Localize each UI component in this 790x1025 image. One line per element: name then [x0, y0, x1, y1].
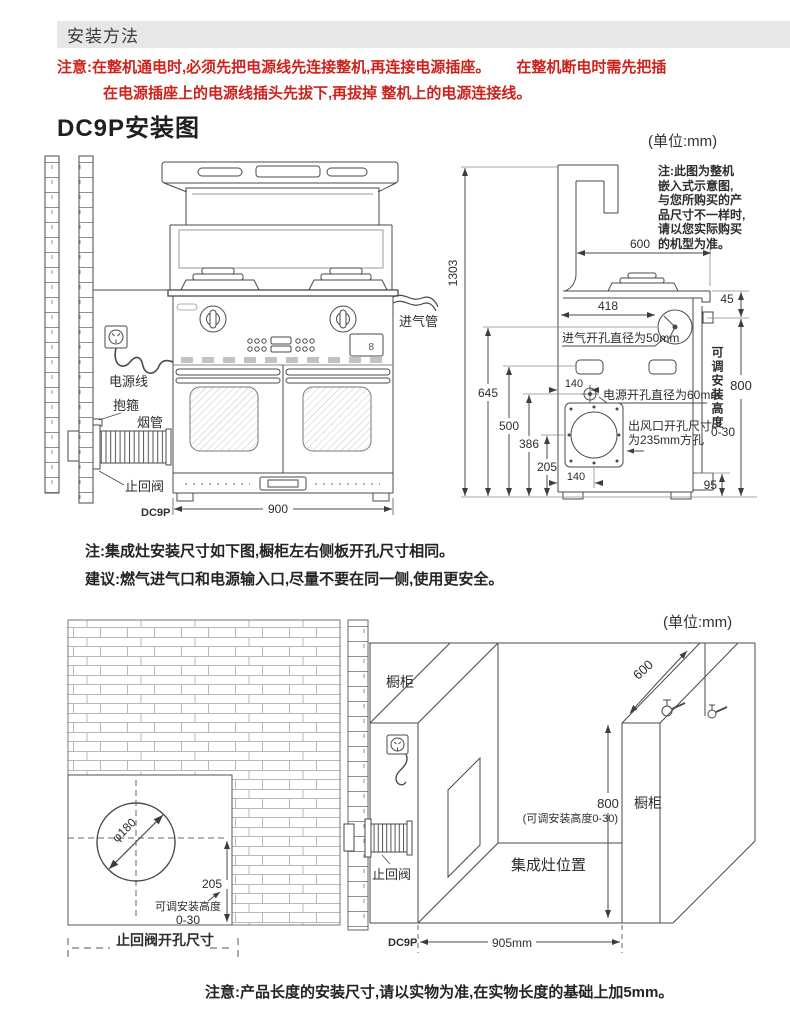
smoke-pipe-label: 烟管 [137, 415, 163, 430]
check-valve-hole-drawing: φ180 205 可调安装高度 0-30 止回阀开孔尺寸 [60, 618, 352, 963]
power-hole-symbol [581, 385, 599, 403]
outlet-hole-square [565, 403, 623, 467]
adjustable-height-label: 可调安装高度 [155, 899, 221, 913]
dim-800-cabinet: 800 [597, 796, 619, 811]
cabinet-label-right: 橱柜 [634, 795, 662, 811]
warning-line-1: 注意:在整机通电时,必须先把电源线先连接整机,再连接电源插座。在整机断电时需先把… [57, 55, 783, 81]
power-hole-label: 电源开孔直径为60mm [603, 388, 720, 402]
burner-right [309, 268, 387, 290]
countertop [168, 290, 398, 296]
intake-pipe-label: 进气管 [399, 314, 438, 329]
clamp-label: 抱箍 [113, 398, 139, 413]
check-valve-label: 止回阀 [125, 479, 164, 494]
side-bracket [703, 312, 713, 323]
dim-95: 95 [704, 478, 718, 492]
front-view-svg: 电源线 抱箍 烟管 止回阀 进气管 DC9P 900 8 [35, 148, 447, 530]
door-window-left [190, 387, 258, 451]
adjustable-height-label: 可调安装高度 [709, 346, 726, 430]
power-socket-icon [105, 326, 127, 348]
mid-suggestion: 建议:燃气进气口和电源输入口,尽量不要在同一侧,使用更安全。 [85, 568, 503, 589]
power-cord [115, 348, 173, 373]
dim-800: 800 [730, 378, 752, 393]
foot-left [177, 493, 193, 501]
outer-vent-cap [344, 824, 354, 851]
control-knob-left [200, 306, 226, 332]
smoke-pipe-ribs [371, 824, 407, 852]
dim-900: 900 [268, 502, 288, 516]
dim-45: 45 [720, 292, 734, 306]
check-valve-label: 止回阀 [372, 867, 411, 882]
intake-hole-label: 进气开孔直径为50mm [562, 330, 679, 345]
warning-line-2: 在电源插座上的电源线插头先拔下,再拔掉 整机上的电源连接线。 [57, 81, 783, 107]
display-digit: 8 [368, 342, 374, 353]
dim-205-hole: 205 [202, 877, 222, 891]
brand-logo [177, 304, 197, 310]
section-header-bar: 安装方法 [57, 21, 790, 48]
warning-text: 注意:在整机通电时,必须先把电源线先连接整机,再连接电源插座。在整机断电时需先把… [57, 55, 783, 107]
hole-view-svg: φ180 205 可调安装高度 0-30 止回阀开孔尺寸 [60, 618, 352, 963]
power-cord-label: 电源线 [109, 374, 148, 389]
manual-page: { "header": { "title": "安装方法" }, "warnin… [0, 0, 790, 1025]
dim-1303: 1303 [446, 259, 460, 286]
dim-140-bottom: 140 [567, 471, 585, 483]
door-window-right [303, 387, 371, 451]
cabinet-3d-drawing: 橱柜 橱柜 600 800 (可调安装高度0-30) 集成灶位置 止回阀 DC9… [340, 612, 790, 964]
intake-pipe-curve [393, 295, 438, 311]
control-buttons [248, 337, 314, 352]
dim-500: 500 [499, 419, 519, 433]
dim-386: 386 [519, 437, 539, 451]
outer-vent-cap [68, 431, 79, 461]
model-label: DC9P [141, 507, 170, 519]
side-opening [448, 758, 480, 877]
check-valve-flange [93, 425, 100, 469]
hole-caption: 止回阀开孔尺寸 [116, 932, 214, 948]
section-header-title: 安装方法 [57, 22, 139, 47]
brick-column [348, 620, 368, 930]
dim-205: 205 [537, 460, 557, 474]
dim-905: 905mm [492, 936, 532, 950]
gas-valve-icon-2 [708, 705, 727, 718]
embedded-diagram-note: 注:此图为整机 嵌入式示意图, 与您所购买的产 品尺寸不一样时, 请以您实际购买… [658, 164, 762, 251]
cabinet-view-texts: 橱柜 橱柜 600 800 (可调安装高度0-30) 集成灶位置 止回阀 DC9… [372, 657, 662, 950]
side-view-drawing: 1303 600 418 进气开孔直径为50mm 645 500 386 205… [445, 140, 790, 540]
dim-600-cabinet: 600 [630, 657, 656, 683]
footer-note: 注意:产品长度的安装尺寸,请以实物为准,在实物长度的基础上加5mm。 [205, 981, 673, 1002]
dim-418: 418 [598, 299, 618, 313]
model-label: DC9P [388, 937, 417, 949]
dim-140-top: 140 [565, 378, 583, 390]
cabinet-label-left: 橱柜 [386, 674, 414, 690]
outlet-label-line2: 为235mm方孔 [628, 432, 704, 447]
adjustable-note: (可调安装高度0-30) [523, 811, 618, 825]
display-window [350, 334, 383, 356]
control-knob-right [330, 306, 356, 332]
burner-left [181, 268, 259, 290]
side-view-texts: 1303 600 418 进气开孔直径为50mm 645 500 386 205… [446, 237, 752, 492]
wall-column-left [45, 156, 59, 493]
outlet-label-line1: 出风口开孔尺寸 [628, 419, 712, 433]
drawer-handle [260, 477, 306, 490]
hood-top [162, 162, 398, 183]
smoke-pipe-ribs [100, 431, 166, 463]
check-valve-flange [365, 819, 371, 857]
stove-position-label: 集成灶位置 [511, 857, 586, 874]
dim-600: 600 [630, 237, 650, 251]
front-view-drawing: 电源线 抱箍 烟管 止回阀 进气管 DC9P 900 8 [35, 148, 447, 530]
mid-note: 注:集成灶安装尺寸如下图,橱柜左右侧板开孔尺寸相同。 [85, 540, 454, 561]
wall-column-right [79, 156, 93, 503]
dim-645: 645 [478, 386, 498, 400]
cabinet-view-svg: 橱柜 橱柜 600 800 (可调安装高度0-30) 集成灶位置 止回阀 DC9… [340, 612, 790, 964]
foot-right [373, 493, 389, 501]
power-cord [396, 754, 407, 785]
front-view-lines [45, 156, 438, 515]
adjustable-range: 0-30 [176, 913, 200, 927]
front-view-texts: 电源线 抱箍 烟管 止回阀 进气管 DC9P 900 8 [109, 314, 438, 519]
cabinet-view-lines [344, 620, 755, 953]
diagram-title: DC9P安装图 [57, 108, 200, 143]
gas-valve-icon-1 [662, 700, 685, 716]
